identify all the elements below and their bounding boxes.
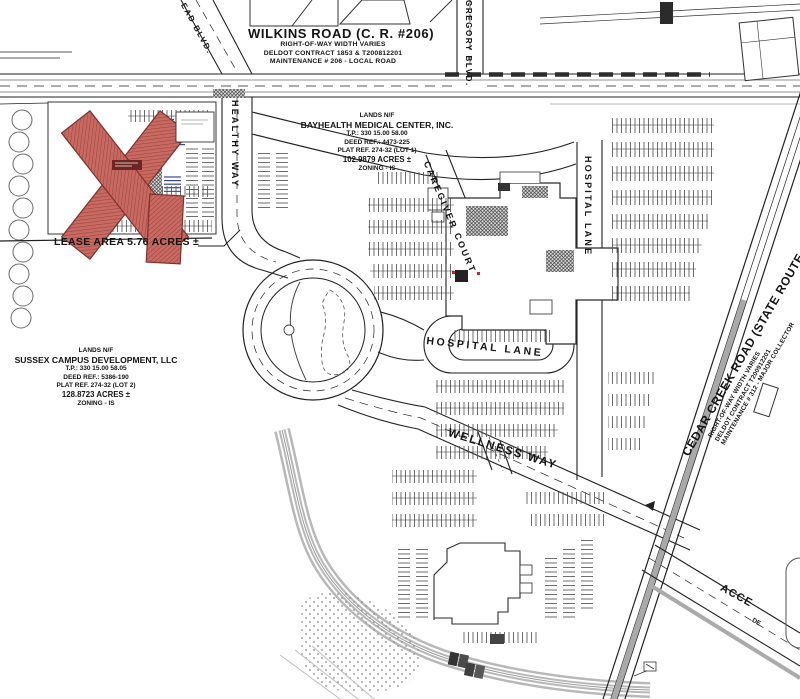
contract-note: DELDOT CONTRACT 1853 & T200812201 (248, 50, 418, 58)
deed-ref: DEED REF.: 5386-190 (12, 374, 180, 382)
deed-ref: DEED REF.: 4473-225 (288, 139, 466, 147)
gregory-blvd-label: GREGORY BLVD. (463, 0, 472, 87)
tax-parcel: T.P.: 330 15.00 58.00 (288, 130, 466, 138)
plat-ref: PLAT REF. 274-32 (LOT 2) (12, 382, 180, 390)
maintenance-note: MAINTENANCE # 206 - LOCAL ROAD (248, 58, 418, 66)
hospital-lane-upper-label: HOSPITAL LANE (582, 156, 592, 256)
road-name: WILKINS ROAD (C. R. #206) (248, 27, 418, 41)
owner-name: SUSSEX CAMPUS DEVELOPMENT, LLC (12, 355, 180, 365)
lease-area-callout: LEASE AREA 5.76 ACRES ± (54, 237, 199, 249)
bayhealth-parcel-label: LANDS N/F BAYHEALTH MEDICAL CENTER, INC.… (288, 112, 466, 173)
zoning: ZONING - IS (12, 400, 180, 408)
acreage: 102.9879 ACRES ± (288, 155, 466, 165)
roundabout (243, 260, 383, 400)
bottom-building (434, 543, 532, 644)
parking-ne (612, 118, 714, 301)
owner-name: BAYHEALTH MEDICAL CENTER, INC. (288, 120, 466, 130)
sussex-parcel-label: LANDS N/F SUSSEX CAMPUS DEVELOPMENT, LLC… (12, 347, 180, 408)
acreage: 128.8723 ACRES ± (12, 390, 180, 400)
small-sign (634, 662, 656, 676)
zoning: ZONING - IS (288, 165, 466, 173)
healthy-way-label: HEALTHY WAY (229, 100, 239, 188)
lands-nf: LANDS N/F (12, 347, 180, 355)
plat-ref: PLAT REF. 274-32 (LOT 1) (288, 147, 466, 155)
checkered-blocks (446, 652, 486, 679)
row-note: RIGHT-OF-WAY WIDTH VARIES (248, 41, 418, 49)
wilkins-road-label: WILKINS ROAD (C. R. #206) RIGHT-OF-WAY W… (248, 27, 418, 66)
tax-parcel: T.P.: 330 15.00 58.05 (12, 365, 180, 373)
site-plan-canvas: WILKINS ROAD (C. R. #206) RIGHT-OF-WAY W… (0, 0, 800, 699)
lands-nf: LANDS N/F (288, 112, 466, 120)
lease-annex-building (176, 112, 214, 142)
